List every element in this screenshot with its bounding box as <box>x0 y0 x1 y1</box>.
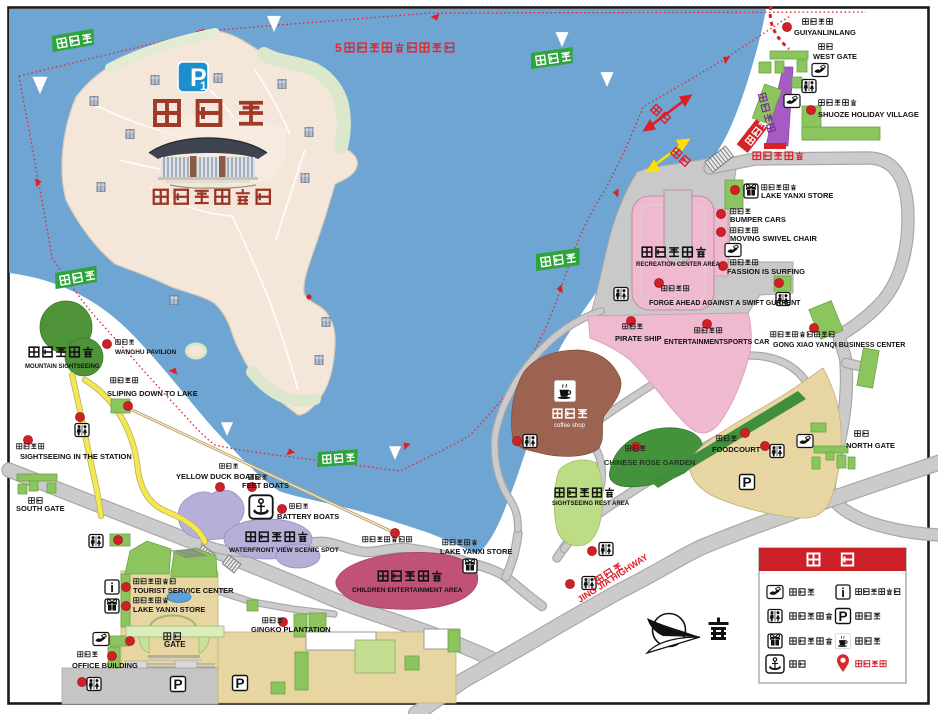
svg-text:GONG XIAO YANQI BUSINESS CENTE: GONG XIAO YANQI BUSINESS CENTER <box>773 342 905 349</box>
svg-text:BATTERY BOATS: BATTERY BOATS <box>277 512 339 521</box>
svg-text:1: 1 <box>200 79 207 93</box>
svg-text:CHILDREN ENTERTAINMENT AREA: CHILDREN ENTERTAINMENT AREA <box>352 587 463 594</box>
svg-text:PIRATE SHIP: PIRATE SHIP <box>615 334 662 343</box>
svg-text:FASSION IS SURFING: FASSION IS SURFING <box>727 267 805 276</box>
svg-text:LAKE YANXI STORE: LAKE YANXI STORE <box>440 547 512 556</box>
svg-text:MOVING SWIVEL CHAIR: MOVING SWIVEL CHAIR <box>730 234 818 243</box>
svg-text:FOODCOURT: FOODCOURT <box>712 445 761 454</box>
svg-text:GINGKO PLANTATION: GINGKO PLANTATION <box>251 625 331 634</box>
svg-text:FORGE AHEAD AGAINST A SWIFT GU: FORGE AHEAD AGAINST A SWIFT GURRENT <box>649 300 801 307</box>
svg-text:RECREATION CENTER AREA: RECREATION CENTER AREA <box>636 262 721 268</box>
svg-text:coffee shop: coffee shop <box>554 423 586 429</box>
svg-text:ENTERTAINMENTSPORTS CAR: ENTERTAINMENTSPORTS CAR <box>664 339 769 346</box>
svg-text:LAKE YANXI STORE: LAKE YANXI STORE <box>761 191 833 200</box>
svg-text:WEST GATE: WEST GATE <box>813 52 857 61</box>
svg-text:MOUNTAIN SIGHTSEEING: MOUNTAIN SIGHTSEEING <box>25 364 100 370</box>
svg-text:SLIPING DOWN TO LAKE: SLIPING DOWN TO LAKE <box>107 389 198 398</box>
svg-text:WATERFRONT VIEW SCENIC SPOT: WATERFRONT VIEW SCENIC SPOT <box>229 547 339 554</box>
svg-text:5: 5 <box>335 41 342 55</box>
svg-text:SIGHTSEEING REST AREA: SIGHTSEEING REST AREA <box>552 501 630 507</box>
svg-text:OFFICE BUILDING: OFFICE BUILDING <box>72 661 138 670</box>
svg-text:WANGHU PAVILION: WANGHU PAVILION <box>115 349 176 356</box>
svg-text:SOUTH GATE: SOUTH GATE <box>16 504 65 513</box>
svg-text:BUMPER CARS: BUMPER CARS <box>730 215 786 224</box>
svg-text:YELLOW DUCK BOATS: YELLOW DUCK BOATS <box>176 472 260 481</box>
svg-text:SHUOZE HOLIDAY VILLAGE: SHUOZE HOLIDAY VILLAGE <box>818 110 919 119</box>
svg-text:FEET BOATS: FEET BOATS <box>242 481 289 490</box>
svg-text:SIGHTSEEING IN THE STATION: SIGHTSEEING IN THE STATION <box>20 452 132 461</box>
svg-text:NORTH GATE: NORTH GATE <box>846 441 895 450</box>
svg-text:GUIYANLINLANG: GUIYANLINLANG <box>794 28 856 37</box>
svg-text:TOURIST SERVICE CENTER: TOURIST SERVICE CENTER <box>133 586 234 595</box>
svg-text:LAKE YANXI STORE: LAKE YANXI STORE <box>133 605 205 614</box>
svg-text:GATE: GATE <box>164 640 186 649</box>
svg-text:CHINESE ROSE GARDEN: CHINESE ROSE GARDEN <box>604 458 695 467</box>
